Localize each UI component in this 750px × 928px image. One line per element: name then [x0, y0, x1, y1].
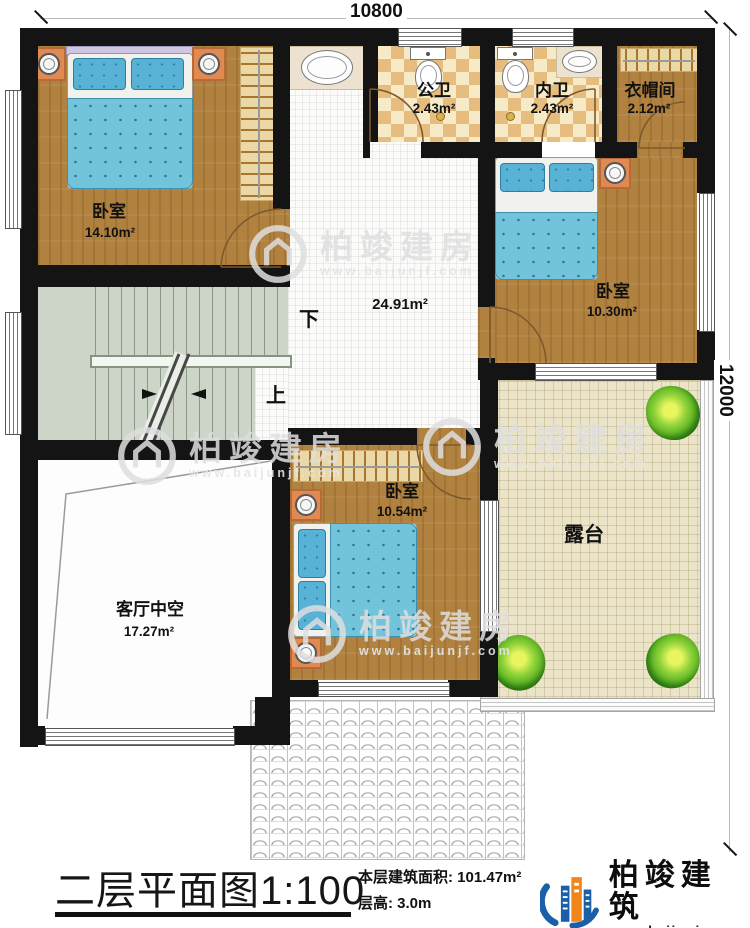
- nightstand: [290, 637, 322, 669]
- wall: [697, 330, 715, 380]
- wall: [655, 363, 702, 380]
- room-label: 内卫: [535, 82, 569, 101]
- wall: [478, 152, 495, 307]
- wall: [272, 443, 290, 745]
- wall: [448, 680, 480, 697]
- terrace-parapet: [700, 380, 714, 712]
- lamp-icon: [198, 53, 220, 75]
- nightstand: [599, 157, 631, 189]
- dimension-right-value: 12000: [714, 360, 736, 421]
- closet-rod: [258, 50, 260, 198]
- wall: [20, 726, 45, 745]
- wardrobe-closet: [240, 47, 275, 201]
- brand-logo-icon: [540, 869, 601, 928]
- bed-pillow: [298, 529, 326, 578]
- wall: [478, 358, 495, 380]
- brand-name: 柏竣建筑: [609, 860, 750, 923]
- closet-rod: [296, 466, 420, 468]
- window: [480, 500, 499, 632]
- room-label: 客厅中空: [116, 601, 184, 620]
- room-label: 衣帽间: [625, 82, 676, 101]
- room-area: 2.12m²: [628, 102, 671, 117]
- floor-height-value: 3.0m: [397, 895, 431, 912]
- lamp-icon: [604, 162, 626, 184]
- wall: [273, 46, 290, 209]
- room-area: 2.43m²: [531, 102, 574, 117]
- wall: [495, 363, 535, 380]
- toilet-bowl: [502, 60, 529, 93]
- floor-height-line: 层高: 3.0m: [358, 892, 431, 913]
- terrace-parapet: [480, 698, 715, 712]
- bed-pillow: [549, 163, 594, 192]
- bed-blanket: [495, 212, 598, 280]
- floor-area-label: 本层建筑面积:: [358, 869, 453, 886]
- window: [512, 28, 574, 47]
- wardrobe-closet: [293, 450, 423, 482]
- bed-blanket: [330, 523, 417, 637]
- room-living-void-floor: [38, 460, 272, 728]
- floor-height-label: 层高:: [358, 895, 393, 912]
- doorway-floor: [478, 305, 495, 358]
- wall: [602, 28, 617, 142]
- title-underline: [55, 912, 351, 917]
- dimension-tick-icon: [723, 842, 737, 856]
- wall: [20, 28, 38, 747]
- room-area: 10.30m²: [587, 305, 637, 320]
- room-area: 2.43m²: [413, 102, 456, 117]
- room-label: 卧室: [92, 203, 126, 222]
- window: [535, 363, 657, 381]
- room-label: 露台: [564, 524, 604, 546]
- floor-drain: [506, 112, 515, 121]
- doorway-floor: [637, 142, 685, 158]
- wall: [20, 440, 290, 460]
- lamp-icon: [295, 642, 317, 664]
- wall: [20, 265, 290, 287]
- room-label: 公卫: [417, 82, 451, 101]
- wash-basin: [301, 50, 353, 85]
- plan-title-text: 二层平面图: [55, 869, 260, 913]
- window: [45, 728, 235, 746]
- stair-up-label: 上: [266, 379, 286, 408]
- wall: [697, 46, 715, 193]
- floor-area-value: 101.47m²: [457, 869, 521, 886]
- window: [5, 312, 22, 435]
- wall: [255, 697, 272, 730]
- plan-scale: 1:100: [260, 869, 365, 913]
- room-label: 卧室: [596, 283, 630, 302]
- wall: [480, 630, 498, 697]
- floor-plan-page: 柏竣建房 www.baijunjf.com 柏竣建房 www.baijunjf.…: [0, 0, 750, 928]
- room-label: 卧室: [385, 483, 419, 502]
- doorway-floor: [273, 209, 290, 267]
- stair-down-label: 下: [299, 303, 319, 332]
- nightstand: [290, 489, 322, 521]
- stair-handrail: [90, 355, 292, 368]
- brand-logo: 柏竣建筑 www.baijunjz.com: [540, 860, 750, 928]
- toilet-tank: [410, 47, 446, 60]
- bed-pillow: [500, 163, 545, 192]
- closet-rod: [623, 60, 695, 62]
- wall: [480, 380, 498, 500]
- stair-arrow-icon: [191, 389, 206, 399]
- dimension-line-right: [729, 30, 730, 852]
- wall: [595, 142, 637, 158]
- bed-pillow: [298, 581, 326, 630]
- toilet-tank: [497, 47, 533, 60]
- window: [699, 193, 715, 332]
- window: [318, 682, 450, 697]
- dimension-top-value: 10800: [346, 1, 407, 23]
- roof-tiles: [250, 700, 525, 860]
- room-area: 17.27m²: [124, 625, 174, 640]
- wash-basin: [562, 50, 597, 73]
- brand-url: www.baijunjz.com: [609, 923, 750, 928]
- wall: [363, 28, 378, 142]
- plant-icon: [646, 386, 700, 440]
- stair-arrow-icon: [142, 389, 157, 399]
- wall: [363, 142, 370, 158]
- room-area: 24.91m²: [372, 297, 428, 314]
- plan-title: 二层平面图1:100: [55, 858, 365, 916]
- title-block: 二层平面图1:100 本层建筑面积: 101.47m² 层高: 3.0m: [0, 860, 750, 928]
- bed-blanket: [67, 98, 193, 189]
- wall: [466, 428, 480, 445]
- bed-pillow: [131, 58, 184, 90]
- room-area: 14.10m²: [85, 226, 135, 241]
- nightstand: [192, 47, 226, 81]
- wall: [288, 428, 417, 445]
- window: [398, 28, 462, 47]
- dimension-tick-icon: [723, 22, 737, 36]
- lamp-icon: [295, 494, 317, 516]
- floor-plan: 柏竣建房 www.baijunjf.com 柏竣建房 www.baijunjf.…: [0, 0, 750, 860]
- clothes-rail: [620, 48, 698, 72]
- room-area: 10.54m²: [377, 505, 427, 520]
- bed-pillow: [73, 58, 126, 90]
- lamp-icon: [38, 53, 60, 75]
- wall: [480, 28, 495, 142]
- wall: [278, 680, 318, 697]
- floor-area-line: 本层建筑面积: 101.47m²: [358, 866, 521, 887]
- window: [5, 90, 22, 229]
